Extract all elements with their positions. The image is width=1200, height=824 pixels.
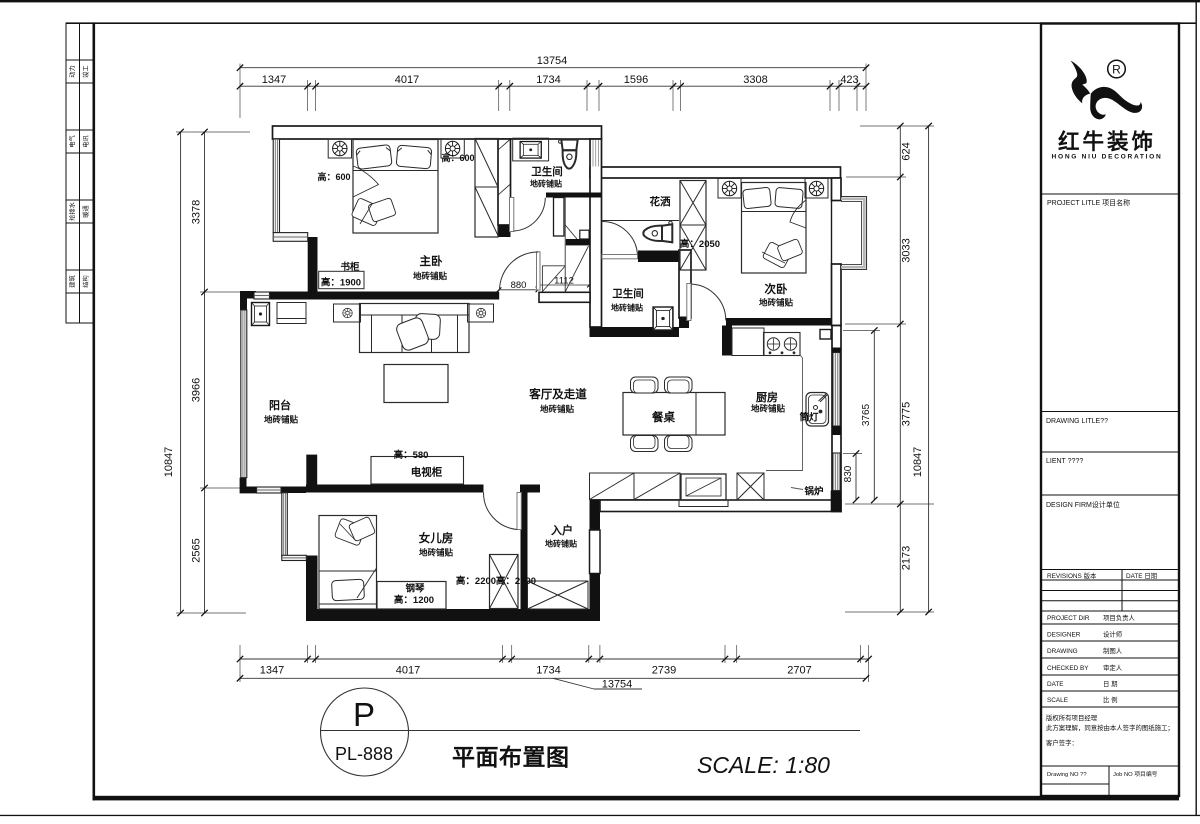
svg-text:423: 423 [840, 74, 858, 86]
svg-text:P: P [353, 696, 375, 733]
svg-text:1734: 1734 [536, 74, 560, 86]
svg-text:地砖铺贴: 地砖铺贴 [413, 271, 448, 281]
svg-text:建筑: 建筑 [69, 275, 77, 288]
svg-text:DATE: DATE [1047, 681, 1064, 688]
svg-text:880: 880 [511, 280, 527, 291]
svg-text:地砖铺贴: 地砖铺贴 [751, 404, 786, 414]
svg-text:客户签字：: 客户签字： [1046, 738, 1078, 747]
svg-text:电讯: 电讯 [82, 135, 90, 147]
svg-text:暖通: 暖通 [82, 205, 90, 217]
svg-text:3765: 3765 [861, 403, 872, 426]
svg-text:地砖铺贴: 地砖铺贴 [545, 539, 577, 549]
svg-text:DESIGN FIRM设计单位: DESIGN FIRM设计单位 [1046, 500, 1120, 509]
svg-text:2707: 2707 [787, 665, 811, 677]
svg-text:地砖铺贴: 地砖铺贴 [611, 303, 643, 313]
svg-text:客厅及走道: 客厅及走道 [528, 387, 587, 401]
svg-text:日 期: 日 期 [1103, 680, 1118, 688]
svg-text:电视柜: 电视柜 [411, 466, 443, 479]
svg-text:3775: 3775 [901, 402, 913, 426]
svg-text:审定人: 审定人 [1103, 663, 1123, 672]
svg-text:地砖铺贴: 地砖铺贴 [264, 415, 299, 425]
svg-text:830: 830 [843, 465, 854, 482]
svg-text:3033: 3033 [901, 238, 913, 262]
svg-text:13754: 13754 [537, 55, 568, 67]
svg-text:高：580: 高：580 [394, 449, 429, 461]
svg-text:DESIGNER: DESIGNER [1047, 632, 1081, 639]
svg-text:2739: 2739 [652, 665, 676, 677]
svg-text:主卧: 主卧 [420, 254, 443, 268]
svg-text:结构: 结构 [82, 275, 90, 287]
svg-text:高：1200: 高：1200 [394, 594, 434, 606]
svg-text:高：2200: 高：2200 [496, 575, 536, 587]
svg-text:卫生间: 卫生间 [531, 165, 563, 178]
svg-text:女儿房: 女儿房 [419, 531, 454, 545]
svg-text:PROJECT LITLE 项目名称: PROJECT LITLE 项目名称 [1047, 198, 1130, 207]
svg-text:次卧: 次卧 [765, 282, 788, 296]
svg-text:SCALE: 1:80: SCALE: 1:80 [697, 752, 830, 778]
svg-text:卫生间: 卫生间 [612, 287, 644, 300]
svg-text:锅炉: 锅炉 [804, 486, 824, 498]
svg-text:2173: 2173 [901, 546, 913, 570]
svg-text:DATE 日期: DATE 日期 [1126, 572, 1157, 580]
svg-text:地砖铺贴: 地砖铺贴 [759, 298, 794, 308]
svg-text:花洒: 花洒 [650, 195, 671, 208]
svg-text:CHECKED BY: CHECKED BY [1047, 665, 1089, 672]
svg-text:地砖铺贴: 地砖铺贴 [530, 179, 562, 189]
svg-text:书柜: 书柜 [340, 261, 360, 273]
svg-text:1347: 1347 [262, 74, 286, 86]
svg-text:地砖铺贴: 地砖铺贴 [540, 404, 575, 414]
svg-text:3378: 3378 [191, 200, 203, 224]
svg-text:高：600: 高：600 [441, 152, 474, 163]
svg-text:1596: 1596 [624, 74, 648, 86]
svg-text:PROJECT DIR: PROJECT DIR [1047, 615, 1090, 622]
svg-text:高：2050: 高：2050 [680, 238, 720, 250]
svg-text:10847: 10847 [163, 447, 175, 478]
svg-text:HONG NIU DECORATION: HONG NIU DECORATION [1052, 154, 1163, 161]
svg-text:13754: 13754 [602, 679, 633, 691]
svg-text:Drawing NO ??: Drawing NO ?? [1047, 772, 1087, 778]
svg-text:4017: 4017 [395, 74, 419, 86]
svg-text:1347: 1347 [260, 665, 284, 677]
svg-text:3966: 3966 [191, 378, 203, 402]
svg-text:地砖铺贴: 地砖铺贴 [419, 548, 454, 558]
svg-text:1734: 1734 [536, 665, 560, 677]
svg-text:此方案理解，同意按由本人签字的图纸施工；: 此方案理解，同意按由本人签字的图纸施工； [1046, 723, 1174, 732]
svg-text:4017: 4017 [396, 665, 420, 677]
svg-text:624: 624 [901, 142, 913, 160]
svg-text:LIENT ????: LIENT ???? [1046, 458, 1083, 465]
svg-text:高：600: 高：600 [317, 171, 350, 182]
svg-text:2565: 2565 [191, 538, 203, 562]
svg-text:竣工: 竣工 [82, 65, 90, 77]
svg-text:高：1900: 高：1900 [321, 277, 361, 289]
svg-text:3308: 3308 [743, 74, 767, 86]
svg-text:餐桌: 餐桌 [651, 410, 675, 424]
svg-text:钢琴: 钢琴 [405, 583, 425, 595]
svg-text:制图人: 制图人 [1103, 646, 1123, 655]
svg-text:红牛装饰: 红牛装饰 [1058, 129, 1156, 154]
svg-text:SCALE: SCALE [1047, 697, 1068, 704]
svg-text:电气: 电气 [69, 135, 77, 147]
svg-text:版权所有项目经理: 版权所有项目经理 [1046, 713, 1098, 722]
svg-text:筒灯: 筒灯 [798, 412, 819, 424]
svg-text:REVISIONS 版本: REVISIONS 版本 [1047, 571, 1097, 580]
svg-text:阳台: 阳台 [269, 398, 291, 412]
svg-text:给排水: 给排水 [69, 201, 77, 220]
svg-text:动力: 动力 [69, 65, 77, 77]
svg-text:高：2200: 高：2200 [456, 575, 496, 587]
svg-text:比 例: 比 例 [1103, 695, 1118, 704]
svg-text:厨房: 厨房 [756, 390, 778, 404]
svg-text:项目负责人: 项目负责人 [1103, 613, 1136, 622]
svg-text:10847: 10847 [912, 447, 924, 478]
svg-text:DRAWING: DRAWING [1047, 648, 1078, 655]
svg-text:入户: 入户 [551, 523, 573, 537]
svg-text:平面布置图: 平面布置图 [452, 744, 570, 770]
svg-text:设计师: 设计师 [1103, 630, 1123, 639]
svg-text:Job NO 项目编号: Job NO 项目编号 [1113, 770, 1158, 778]
svg-text:DRAWING LITLE??: DRAWING LITLE?? [1046, 418, 1108, 425]
svg-text:PL-888: PL-888 [335, 744, 393, 764]
svg-text:R: R [1112, 62, 1121, 76]
